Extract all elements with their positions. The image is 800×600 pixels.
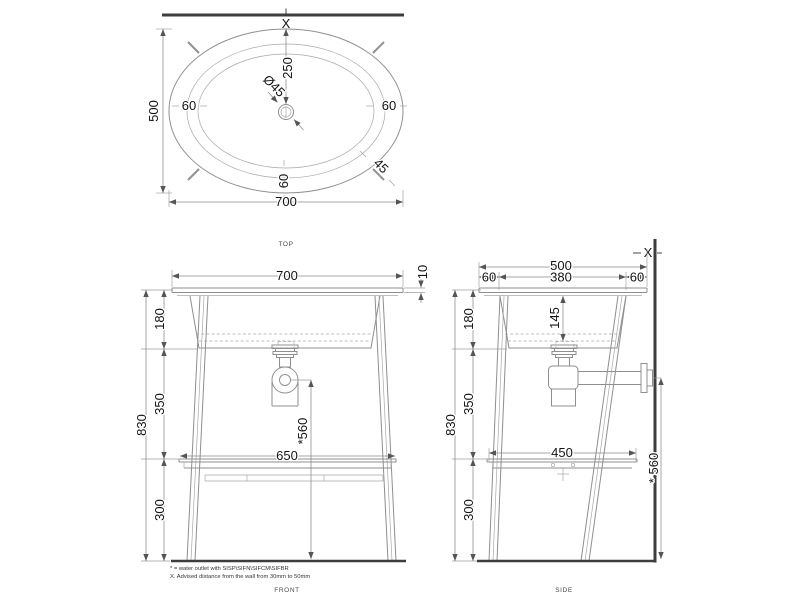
- countertop-side: [479, 288, 647, 296]
- dim-top-depth-label: 500: [146, 100, 161, 122]
- dim-outlet-height-front-label: *560: [295, 418, 310, 445]
- drain: [279, 105, 294, 120]
- dim-side-section-bottom-label: 300: [461, 499, 476, 521]
- note-water-outlet: * = water outlet with SISP\SIFN\SIFCM\SI…: [170, 566, 289, 572]
- dim-corner-angle: 45: [360, 151, 395, 186]
- legs-front: [187, 296, 396, 561]
- dim-drain-from-wall-label: 250: [280, 57, 295, 79]
- technical-drawing-canvas: X 250 Ø45: [0, 0, 800, 600]
- bottle-trap-head: [549, 366, 579, 389]
- dim-top-width-label: 700: [275, 194, 297, 209]
- height-dims-front: 180 350 300 830: [134, 290, 197, 561]
- dim-side-inner-depth: 60 380 60: [479, 270, 647, 291]
- wall-marker-side-label: X: [644, 245, 653, 260]
- dim-front-width-label: 700: [276, 268, 298, 283]
- dim-rim-bottom-label: 60: [276, 174, 291, 188]
- dim-side-inner-depth-label: 380: [550, 270, 572, 285]
- dim-top-thickness: 10: [404, 265, 430, 303]
- dim-front-width: 700: [172, 268, 403, 287]
- dim-side-section-top-label: 180: [461, 308, 476, 330]
- dim-basin-depth-label: 145: [547, 307, 562, 329]
- dim-top-thickness-label: 10: [415, 265, 430, 279]
- siphon-front: [272, 345, 298, 406]
- dim-front-section-bottom-label: 300: [152, 499, 167, 521]
- dim-front-section-top-label: 180: [152, 308, 167, 330]
- front-view-label: FRONT: [274, 587, 299, 594]
- dim-shelf-depth-label: 450: [551, 445, 573, 460]
- wall-distance-marker-side: X: [633, 245, 662, 260]
- basin-front: [190, 296, 380, 348]
- dim-shelf-width-label: 650: [276, 448, 298, 463]
- dim-corner-angle-label: 45: [371, 155, 392, 176]
- height-dims-side: 180 350 300 830: [443, 290, 507, 561]
- dim-rim-back-label: 60: [630, 270, 644, 285]
- top-view: X 250 Ø45: [146, 9, 407, 249]
- front-view: 700 10: [134, 265, 430, 594]
- dim-front-total-height-label: 830: [134, 414, 149, 436]
- dim-outlet-height-side-label: * 560: [646, 453, 661, 483]
- note-wall-distance: X. Advised distance from the wall from 3…: [170, 574, 310, 580]
- top-view-label: TOP: [278, 241, 293, 248]
- dim-drain-diameter: Ø45: [260, 72, 303, 130]
- bottle-trap-body: [552, 389, 576, 406]
- legs-side: [489, 296, 626, 561]
- dim-side-section-mid-label: 350: [461, 393, 476, 415]
- dim-side-total-height-label: 830: [443, 414, 458, 436]
- water-outlet-circle: [280, 375, 291, 386]
- dim-rim-left-label: 60: [182, 98, 196, 113]
- dim-front-section-mid-label: 350: [152, 393, 167, 415]
- side-view-label: SIDE: [555, 587, 573, 594]
- dim-rim-left: 60: [172, 98, 207, 113]
- dim-rim-front-label: 60: [482, 270, 496, 285]
- siphon-side: [549, 345, 653, 406]
- countertop-front: [172, 288, 403, 296]
- shelf-side: [487, 459, 637, 481]
- side-view: X 500 60 380 60: [443, 239, 662, 594]
- dim-outlet-height-front: *560: [291, 380, 311, 559]
- wall-flange: [641, 364, 647, 393]
- dim-shelf-width: 650: [180, 448, 395, 463]
- dim-top-depth: 500: [146, 29, 172, 193]
- dim-rim-right-label: 60: [382, 98, 396, 113]
